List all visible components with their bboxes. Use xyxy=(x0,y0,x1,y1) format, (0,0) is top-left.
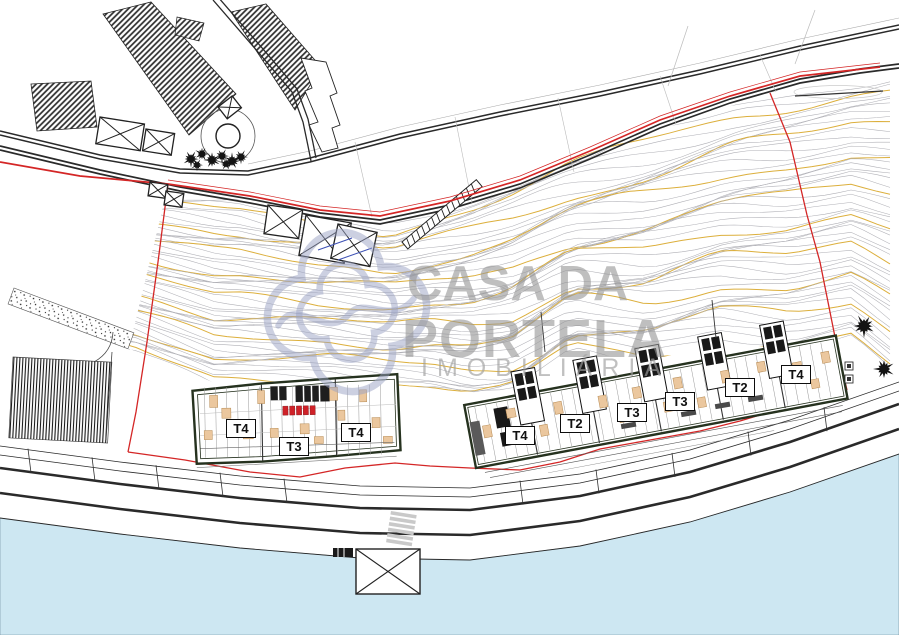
poles xyxy=(541,300,716,352)
site-plan-page: CASA DA PORTELA IMOBILIÁRIA T4 T3 T4 T4 … xyxy=(0,0,899,635)
plot-divider-lines xyxy=(355,55,776,217)
gravel-strip xyxy=(8,288,134,349)
unit-label-right-t2-b: T2 xyxy=(725,378,755,397)
unit-label-right-t2-a: T2 xyxy=(560,414,590,433)
hatched-buildings-block xyxy=(31,0,340,161)
right-building-plan xyxy=(460,312,851,486)
unit-label-right-t3-b: T3 xyxy=(665,392,695,411)
stair-core xyxy=(295,385,329,402)
striped-yard xyxy=(9,357,112,443)
unit-label-left-t4-b: T4 xyxy=(341,423,371,442)
red-planters xyxy=(283,406,316,416)
crosswalk xyxy=(386,511,417,546)
unit-label-left-t3: T3 xyxy=(279,437,309,456)
unit-label-right-t4-a: T4 xyxy=(505,426,535,445)
river-water-area xyxy=(0,454,899,635)
utility-boxes xyxy=(845,362,853,383)
unit-label-left-t4-a: T4 xyxy=(226,419,256,438)
site-plan-canvas xyxy=(0,0,899,635)
unit-label-right-t3-a: T3 xyxy=(617,403,647,422)
unit-label-right-t4-b: T4 xyxy=(781,365,811,384)
